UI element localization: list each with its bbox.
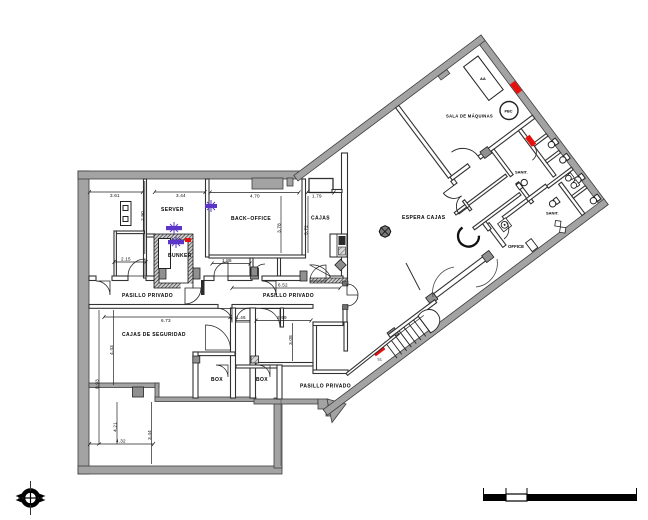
- svg-text:PASILLO PRIVADO: PASILLO PRIVADO: [300, 384, 351, 390]
- svg-text:4.70: 4.70: [250, 194, 260, 199]
- svg-text:PASILLO PRIVADO: PASILLO PRIVADO: [122, 293, 173, 299]
- svg-text:1.79: 1.79: [312, 194, 322, 199]
- svg-text:4.21: 4.21: [113, 422, 118, 432]
- svg-text:2.99: 2.99: [277, 315, 287, 320]
- svg-text:BACK−OFFICE: BACK−OFFICE: [231, 216, 271, 222]
- svg-text:SANIT.: SANIT.: [515, 170, 528, 175]
- svg-text:SANIT.: SANIT.: [546, 211, 559, 216]
- svg-text:BOX: BOX: [211, 377, 223, 383]
- svg-text:SERVER: SERVER: [161, 207, 184, 213]
- svg-text:SALA DE MÁQUINAS: SALA DE MÁQUINAS: [446, 114, 493, 119]
- svg-text:2.15: 2.15: [121, 257, 131, 262]
- svg-text:3.78: 3.78: [277, 223, 282, 233]
- svg-text:PASILLO PRIVADO: PASILLO PRIVADO: [263, 293, 314, 299]
- svg-text:BUNKER: BUNKER: [168, 253, 192, 259]
- svg-text:4.43: 4.43: [109, 345, 114, 355]
- svg-text:3.44: 3.44: [147, 430, 152, 440]
- svg-text:CAJAS DE SEGURIDAD: CAJAS DE SEGURIDAD: [122, 332, 186, 338]
- svg-text:5.72: 5.72: [304, 225, 309, 235]
- svg-text:BOX: BOX: [256, 377, 268, 383]
- svg-text:4.32: 4.32: [116, 439, 126, 444]
- svg-text:CAJAS: CAJAS: [311, 216, 330, 222]
- svg-text:OFFICE: OFFICE: [508, 244, 524, 249]
- svg-text:3.44: 3.44: [176, 193, 186, 198]
- svg-text:3.61: 3.61: [110, 193, 120, 198]
- svg-text:1.86: 1.86: [222, 258, 232, 263]
- svg-text:ESPERA CAJAS: ESPERA CAJAS: [402, 215, 446, 221]
- svg-text:3.08: 3.08: [288, 335, 293, 345]
- svg-text:AA: AA: [480, 76, 486, 81]
- svg-text:1.46: 1.46: [236, 315, 246, 320]
- svg-text:TS: TS: [377, 358, 382, 362]
- svg-text:6.73: 6.73: [161, 318, 171, 323]
- svg-text:6.52: 6.52: [278, 283, 288, 288]
- svg-text:8.93: 8.93: [95, 379, 100, 389]
- svg-text:2.90: 2.90: [140, 211, 145, 221]
- svg-text:PBC: PBC: [505, 110, 513, 114]
